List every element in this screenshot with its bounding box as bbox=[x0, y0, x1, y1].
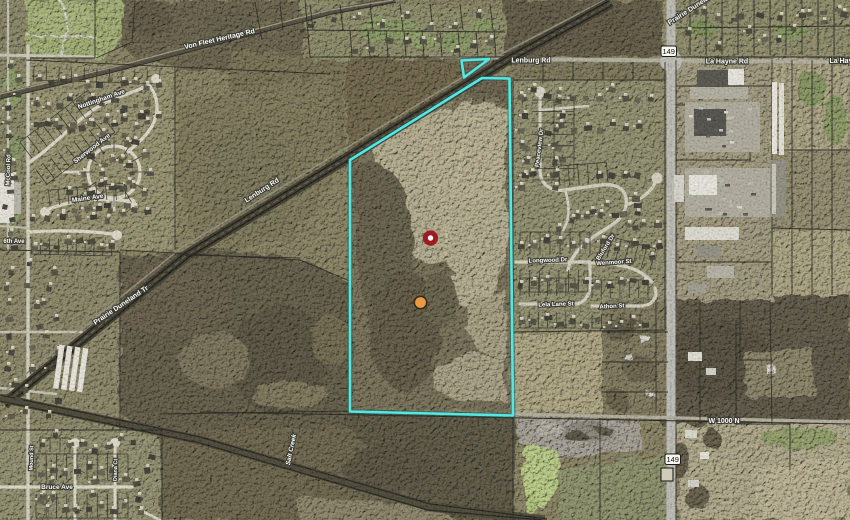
svg-text:W 1000 N: W 1000 N bbox=[708, 418, 739, 425]
svg-text:La Hayne Rd: La Hayne Rd bbox=[706, 59, 748, 66]
svg-text:Mound St: Mound St bbox=[29, 445, 36, 470]
svg-text:Lenburg Rd: Lenburg Rd bbox=[511, 58, 550, 65]
svg-text:McCool Rd: McCool Rd bbox=[5, 154, 12, 186]
svg-text:La Hay: La Hay bbox=[830, 58, 850, 65]
svg-text:Bruce Ave: Bruce Ave bbox=[41, 484, 73, 491]
svg-text:6th Ave: 6th Ave bbox=[3, 239, 25, 245]
svg-text:149: 149 bbox=[662, 47, 675, 56]
svg-text:149: 149 bbox=[666, 455, 679, 464]
svg-text:Diana Ct: Diana Ct bbox=[113, 459, 120, 482]
svg-text:Lela Lane St: Lela Lane St bbox=[538, 301, 574, 308]
